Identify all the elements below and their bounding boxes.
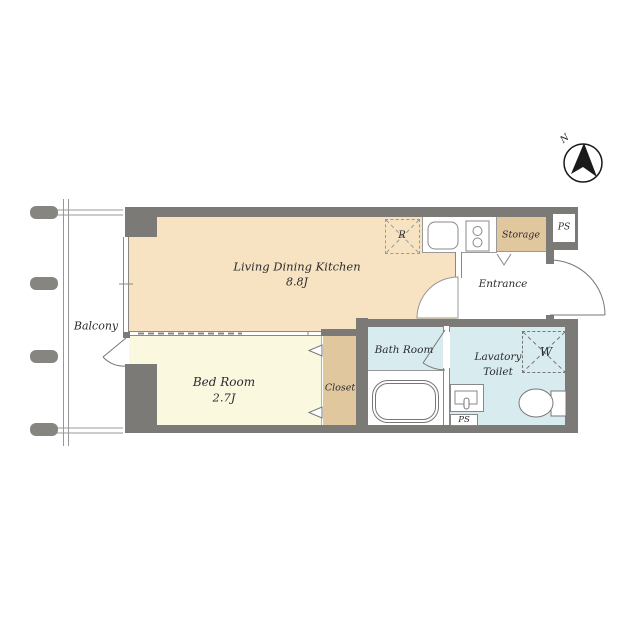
bathtub — [372, 380, 439, 423]
ldk-label: Living Dining Kitchen — [233, 261, 360, 273]
lavatory-label-line2: Toilet — [483, 367, 513, 378]
wall-lavatory-right — [565, 326, 578, 433]
wall-closet-top — [321, 329, 368, 336]
ldk-entrance-wall — [455, 252, 462, 278]
bedroom-label: Bed Room — [193, 376, 255, 388]
wall-window-foot — [123, 331, 130, 338]
bathroom-label: Bath Room — [375, 345, 434, 356]
closet-floor — [323, 336, 358, 425]
wall-column-top-left — [125, 207, 157, 237]
storage-label: Storage — [502, 230, 540, 240]
entrance-label: Entrance — [479, 279, 528, 290]
bedroom-balcony-door — [103, 338, 126, 366]
closet-label: Closet — [325, 383, 355, 393]
bedroom-size-label: 2.7J — [213, 392, 236, 404]
bathtub-inner — [375, 383, 436, 420]
washer-label: W — [540, 346, 552, 358]
lavatory-sink-box — [450, 384, 484, 412]
wall-column-bottom-left — [125, 364, 157, 433]
balcony-label: Balcony — [74, 321, 118, 332]
wall-stub-above-entry-door — [546, 250, 554, 264]
bath-lavatory-wall-upper — [443, 326, 450, 332]
compass-north-label: N — [559, 133, 571, 146]
compass-circle — [564, 144, 602, 182]
entrance-door — [550, 260, 605, 315]
ldk-size-label: 8.8J — [286, 277, 308, 288]
floor-plan: Living Dining Kitchen 8.8J Bed Room 2.7J… — [0, 0, 640, 640]
ps-upper-label: PS — [558, 224, 570, 233]
lavatory-label-line1: Lavatory — [475, 352, 522, 363]
wall-bottom — [125, 425, 578, 433]
kitchen-counter — [422, 217, 497, 253]
wall-wet-area-top — [358, 319, 578, 327]
wall-top — [125, 207, 578, 217]
balcony-posts — [30, 206, 58, 436]
ps-lower-label: PS — [458, 416, 470, 425]
compass-needle — [571, 143, 597, 177]
refrigerator-label: R — [398, 231, 406, 241]
bath-lavatory-wall-lower — [443, 368, 450, 425]
ldk-balcony-window — [123, 237, 129, 332]
wall-stub-below-entry-door — [546, 315, 554, 319]
